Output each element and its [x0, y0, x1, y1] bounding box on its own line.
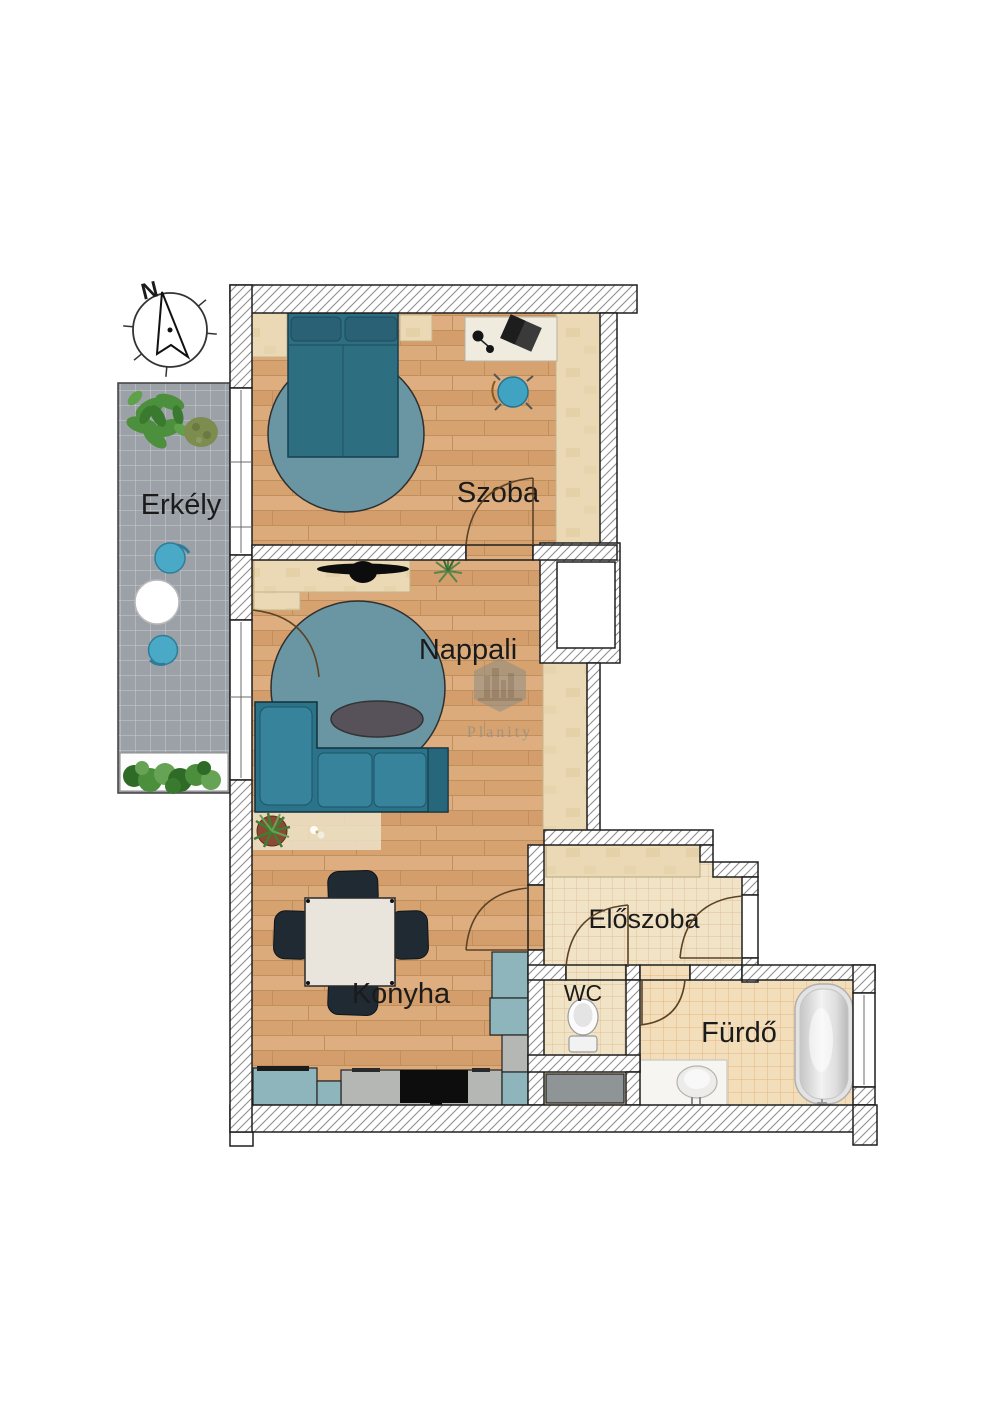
fridge [492, 952, 528, 998]
shaft-opening [557, 562, 615, 648]
wall-niche-right [626, 1072, 640, 1105]
room-wc: WC [564, 980, 602, 1052]
compass: N [123, 275, 217, 376]
nightstand-left [252, 313, 287, 357]
wall-entry-upper [742, 877, 758, 895]
watermark-text: Planity [467, 724, 533, 741]
counter-right [502, 1035, 528, 1072]
bedroom-door-opening [466, 545, 533, 560]
room-label-kitchen: Konyha [352, 978, 451, 1010]
room-label-wc: WC [564, 980, 602, 1006]
compass-north-label: N [138, 275, 160, 304]
washing-machine [546, 1074, 624, 1103]
wall-right-upper [600, 313, 617, 560]
sink-counter [633, 1060, 727, 1105]
room-label-bathroom: Fürdő [701, 1017, 777, 1049]
wall-wc-top-c [690, 965, 742, 980]
cabinet-blue-bottom [502, 1072, 528, 1105]
nightstand-right [400, 315, 432, 341]
desk [465, 314, 557, 361]
tv-sideboard [254, 558, 410, 592]
wall-wc-top-a [528, 965, 566, 980]
wall-divider-a [252, 545, 466, 560]
toilet-icon [568, 999, 598, 1052]
room-balcony: Erkély [118, 383, 230, 794]
wall-divider-b [533, 545, 617, 560]
wall-hall-top [544, 830, 713, 845]
floor-plan-canvas: Erkély Szoba [0, 0, 1000, 1413]
bed [288, 313, 398, 457]
cabinet-blue-mid [490, 998, 528, 1035]
wall-left-a [230, 285, 252, 388]
cabinet-blue-left [253, 1068, 317, 1105]
room-label-balcony: Erkély [141, 489, 222, 521]
coffee-table [331, 701, 423, 737]
compass-needle-icon [157, 292, 188, 357]
hall-sideboard [546, 845, 700, 877]
kitchen-door-opening [528, 885, 544, 950]
wall-bottom-left-step [230, 1132, 253, 1146]
wall-bottom-right-corner [853, 1105, 877, 1145]
stove [400, 1070, 468, 1103]
wall-kitchen-divider-a [528, 845, 544, 885]
cabinet-blue-small [317, 1081, 341, 1105]
wall-bath-right-bottom [853, 1087, 875, 1105]
wall-left-c [230, 780, 252, 1132]
floor-plan-svg: Erkély Szoba [0, 0, 1000, 1413]
balcony-table [135, 580, 179, 624]
wall-right-mid [587, 663, 600, 833]
wall-hall-top-2 [713, 862, 758, 877]
desk-item-small [486, 345, 494, 353]
wall-left-b [230, 555, 252, 620]
balcony-planter [120, 753, 228, 794]
bedroom-wardrobe [556, 313, 600, 545]
bathtub-icon [795, 984, 853, 1107]
room-label-hallway: Előszoba [588, 904, 700, 934]
kitchen-table [305, 898, 395, 986]
wall-wc-top-b [626, 965, 640, 980]
wc-door-opening [566, 965, 626, 980]
balcony-chair-bottom [149, 636, 178, 665]
bath-door-opening [640, 965, 690, 980]
room-label-bedroom: Szoba [457, 477, 540, 509]
balcony-chair-top [155, 543, 185, 573]
balcony-plant-small [184, 417, 218, 447]
tv-sideboard-ext [254, 592, 300, 610]
wall-top [230, 285, 637, 313]
entry-door-opening [742, 895, 758, 958]
wall-bottom [230, 1105, 875, 1132]
wall-bath-right-top [853, 965, 875, 993]
living-wardrobe [543, 655, 587, 833]
wall-step-1 [700, 845, 713, 862]
wall-wc-bottom [528, 1055, 640, 1072]
kitchen-counter-bottom [253, 1066, 502, 1107]
